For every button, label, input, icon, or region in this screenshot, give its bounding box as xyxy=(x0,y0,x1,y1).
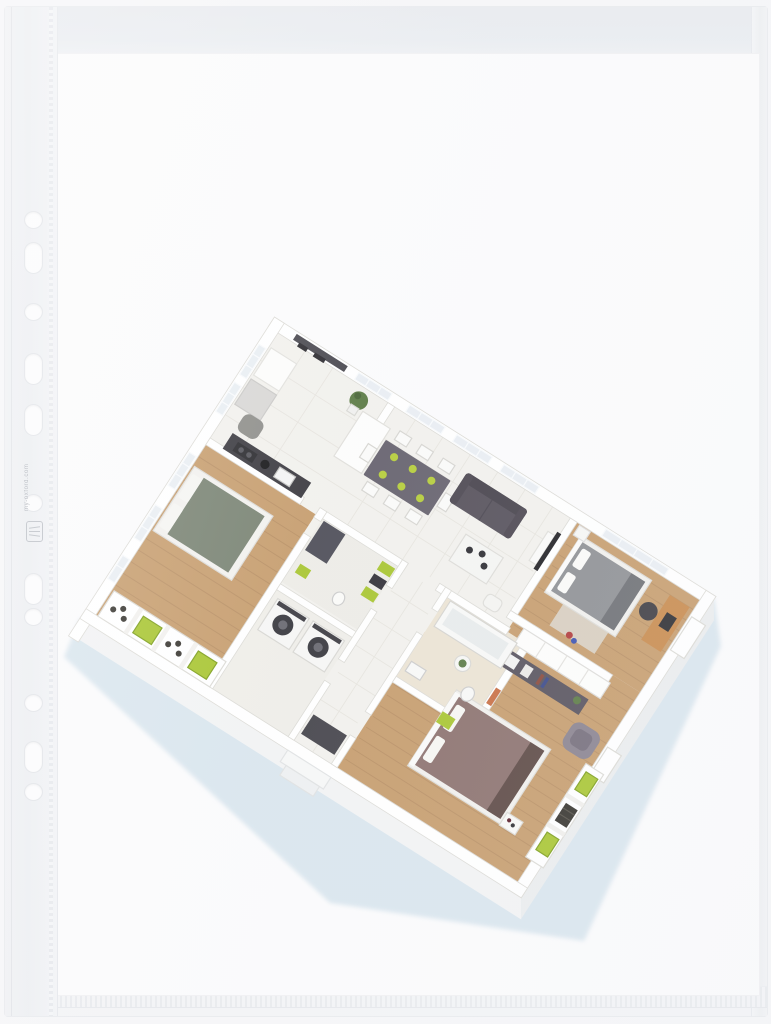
product-photo: my-oxford.com xyxy=(0,0,771,1024)
floor-plan-svg xyxy=(0,0,771,1024)
